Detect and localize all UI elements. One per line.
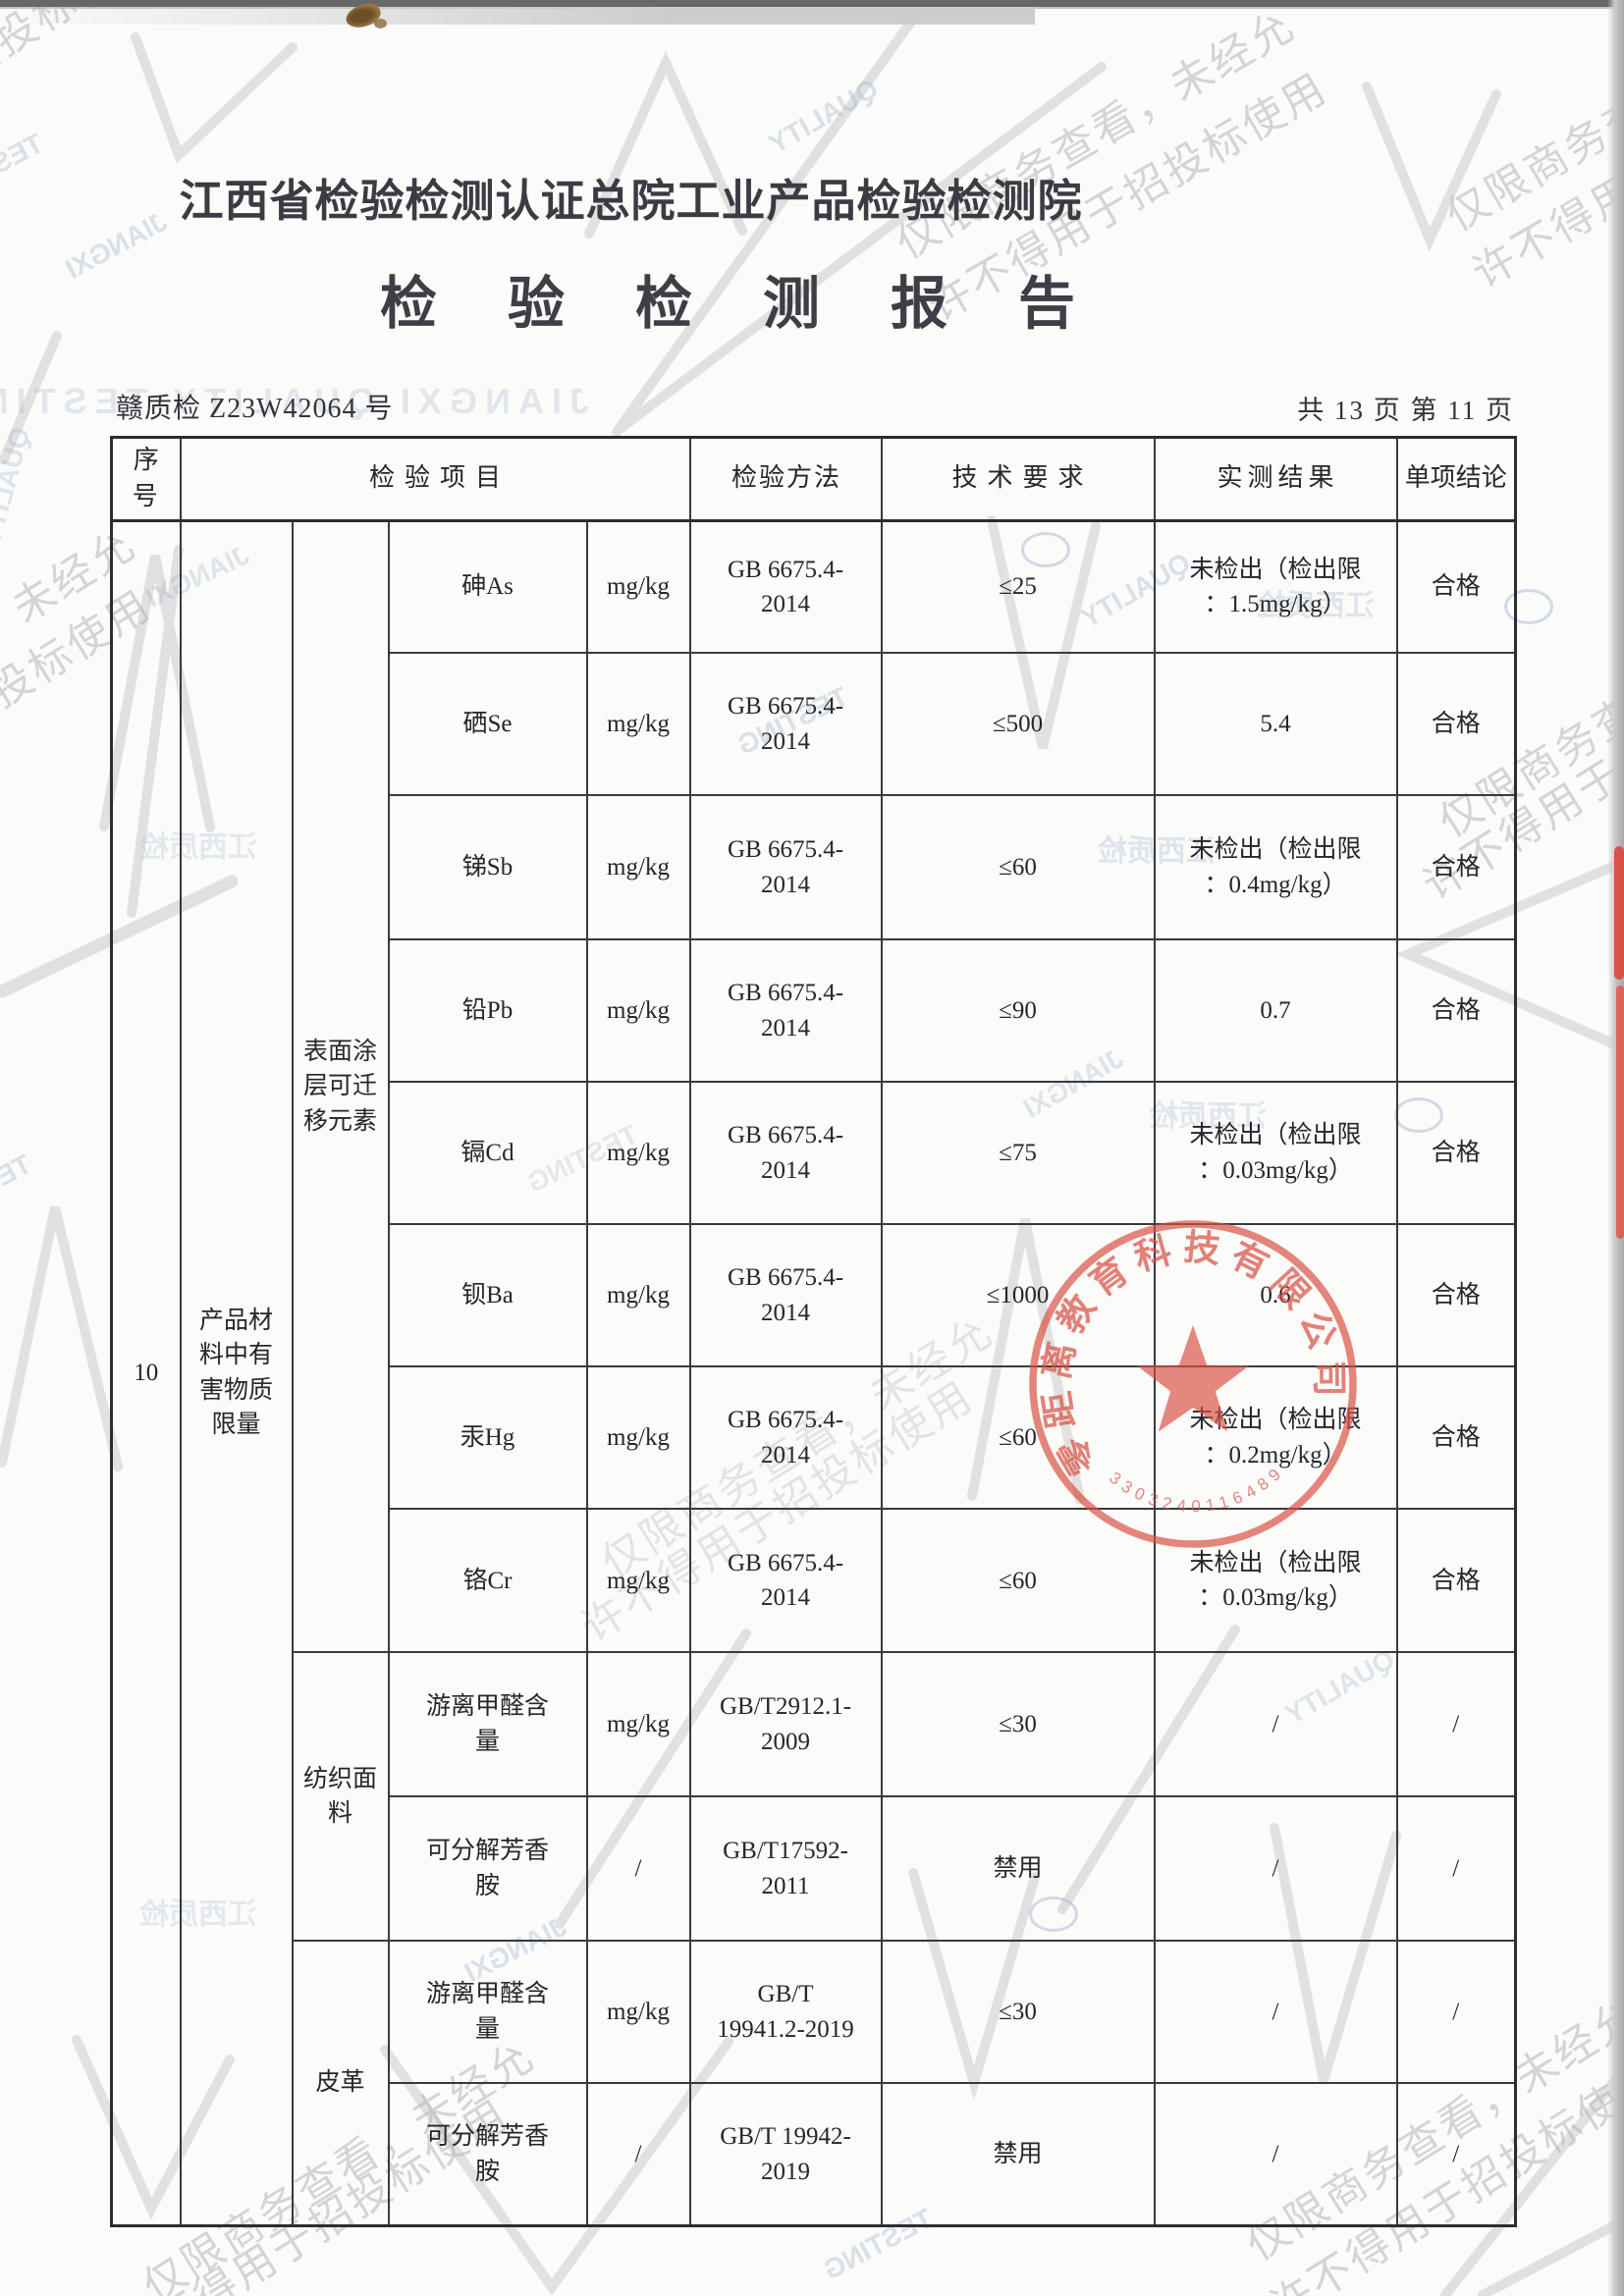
cell-conclusion: 合格 [1397,1224,1516,1366]
cell-requirement: 禁用 [882,2083,1155,2225]
cell-conclusion: 合格 [1397,939,1516,1082]
cell-item: 铬Cr [389,1509,587,1652]
cell-result: 未检出（检出限 ：0.2mg/kg） [1155,1366,1397,1509]
confidential-watermark: 许不得用于招投标使用 [1460,22,1624,300]
cell-method: GB 6675.4- 2014 [690,1509,882,1652]
cell-item: 锑Sb [389,795,587,939]
cell-unit: mg/kg [587,1652,690,1796]
table-header-row: 序号 检验项目 检验方法 技术要求 实测结果 单项结论 [112,438,1516,521]
cell-result: 未检出（检出限 ：0.03mg/kg） [1155,1509,1397,1652]
org-title: 江西省检验检测认证总院工业产品检验检测院 [167,165,1095,229]
cell-requirement: 禁用 [882,1796,1155,1941]
table-row: 纺织面 料 游离甲醛含 量 mg/kg GB/T2912.1- 2009 ≤30… [112,1652,1516,1796]
cell-requirement: ≤60 [882,1366,1155,1509]
cell-conclusion: 合格 [1397,1082,1516,1224]
cell-conclusion: 合格 [1397,520,1516,653]
cell-method: GB 6675.4- 2014 [690,795,882,939]
col-header-method: 检验方法 [690,438,882,521]
cell-result: 0.7 [1155,939,1397,1082]
cell-unit: mg/kg [587,1082,690,1224]
col-header-result: 实测结果 [1155,438,1397,521]
cell-unit: mg/kg [587,939,690,1082]
cell-result: / [1155,1941,1397,2083]
cell-unit: / [587,1796,690,1941]
serial-cell: 10 [112,520,181,2225]
cell-result: 未检出（检出限 ：1.5mg/kg） [1155,520,1397,653]
table-row: 皮革 游离甲醛含 量 mg/kg GB/T 19941.2-2019 ≤30 /… [112,1941,1516,2083]
confidential-watermark: 仅限商务查看，未经允 [884,0,1305,271]
cell-unit: mg/kg [587,1366,690,1509]
cell-result: / [1155,2083,1397,2225]
cell-item: 汞Hg [389,1366,587,1509]
col-header-item: 检验项目 [181,438,690,521]
cell-result: 未检出（检出限 ：0.03mg/kg） [1155,1082,1397,1224]
page-count: 共 13 页 第 11 页 [1139,389,1514,427]
cell-result: 5.4 [1155,653,1397,795]
cell-method: GB/T2912.1- 2009 [690,1652,882,1796]
ghost-text: TESTING [0,1148,37,1232]
cell-requirement: ≤500 [882,653,1155,795]
ghost-text: JIANGXI [61,206,173,286]
cell-method: GB 6675.4- 2014 [690,1366,882,1509]
ghost-text: TESTING [0,128,49,211]
report-number: 赣质检 Z23W42064 号 [116,387,394,426]
cell-unit: mg/kg [587,1941,690,2083]
cell-item: 钡Ba [389,1224,587,1366]
cell-requirement: ≤75 [882,1082,1155,1224]
group-cell-coating: 表面涂 层可迁 移元素 [293,520,389,1652]
cell-item: 游离甲醛含 量 [389,1941,587,2083]
ghost-text: QUALITY [0,424,36,549]
cell-unit: mg/kg [587,653,690,795]
cell-method: GB 6675.4- 2014 [690,520,882,653]
cell-method: GB 6675.4- 2014 [690,939,882,1082]
cell-requirement: ≤60 [882,795,1155,939]
cell-result: / [1155,1796,1397,1941]
group-cell-textile: 纺织面 料 [293,1652,389,1941]
scan-edge-top [0,0,1624,7]
cell-conclusion: / [1397,1796,1516,1941]
ghost-text: QUALITY [764,73,884,160]
cell-unit: mg/kg [587,1224,690,1366]
cell-requirement: ≤30 [882,1652,1155,1796]
cell-item: 铅Pb [389,939,587,1082]
cell-method: GB 6675.4- 2014 [690,1082,882,1224]
cell-conclusion: 合格 [1397,1366,1516,1509]
cell-method: GB/T 19941.2-2019 [690,1941,882,2083]
test-results-table: 序号 检验项目 检验方法 技术要求 实测结果 单项结论 10 产品材 料中有 害… [110,436,1517,2227]
cell-requirement: ≤30 [882,1941,1155,2083]
confidential-watermark: 许不得用于招投标使用 [0,0,166,211]
col-header-requirement: 技术要求 [882,438,1155,521]
red-edge-mark [1616,986,1624,1239]
cell-requirement: ≤60 [882,1509,1155,1652]
cell-requirement: ≤25 [882,520,1155,653]
cell-result: 未检出（检出限 ：0.4mg/kg） [1155,795,1397,939]
group-cell-leather: 皮革 [293,1941,389,2225]
red-edge-mark [1614,846,1624,980]
stain-speck [374,19,387,28]
cell-unit: mg/kg [587,520,690,653]
cell-unit: mg/kg [587,1509,690,1652]
cell-item: 硒Se [389,653,587,795]
cell-conclusion: 合格 [1397,795,1516,939]
cell-item: 可分解芳香 胺 [389,2083,587,2225]
cell-unit: mg/kg [587,795,690,939]
cell-item: 砷As [389,520,587,653]
scan-edge-top-wedge [0,7,1035,25]
report-title: 检验检测报告 [380,257,1146,340]
cell-method: GB/T17592- 2011 [690,1796,882,1941]
cell-item: 镉Cd [389,1082,587,1224]
cell-result: / [1155,1652,1397,1796]
cell-requirement: ≤90 [882,939,1155,1082]
table-row: 10 产品材 料中有 害物质 限量 表面涂 层可迁 移元素 砷As mg/kg … [112,520,1516,653]
col-header-serial: 序号 [112,438,181,521]
cell-item: 游离甲醛含 量 [389,1652,587,1796]
cell-conclusion: / [1397,1941,1516,2083]
cell-conclusion: / [1397,1652,1516,1796]
cell-method: GB 6675.4- 2014 [690,1224,882,1366]
cell-requirement: ≤1000 [882,1224,1155,1366]
cell-conclusion: 合格 [1397,653,1516,795]
category-cell: 产品材 料中有 害物质 限量 [181,520,293,2225]
cell-unit: / [587,2083,690,2225]
col-header-conclusion: 单项结论 [1397,438,1516,521]
cell-conclusion: / [1397,2083,1516,2225]
cell-conclusion: 合格 [1397,1509,1516,1652]
scanned-report-page: TESTING JIANGXI QUALITY JIANGXI QUALITY … [0,0,1624,2296]
cell-item: 可分解芳香 胺 [389,1796,587,1941]
cell-method: GB 6675.4- 2014 [690,653,882,795]
confidential-watermark: 仅限商务查看，未经允 [1434,0,1624,243]
cell-method: GB/T 19942- 2019 [690,2083,882,2225]
cell-result: 0.6 [1155,1224,1397,1366]
